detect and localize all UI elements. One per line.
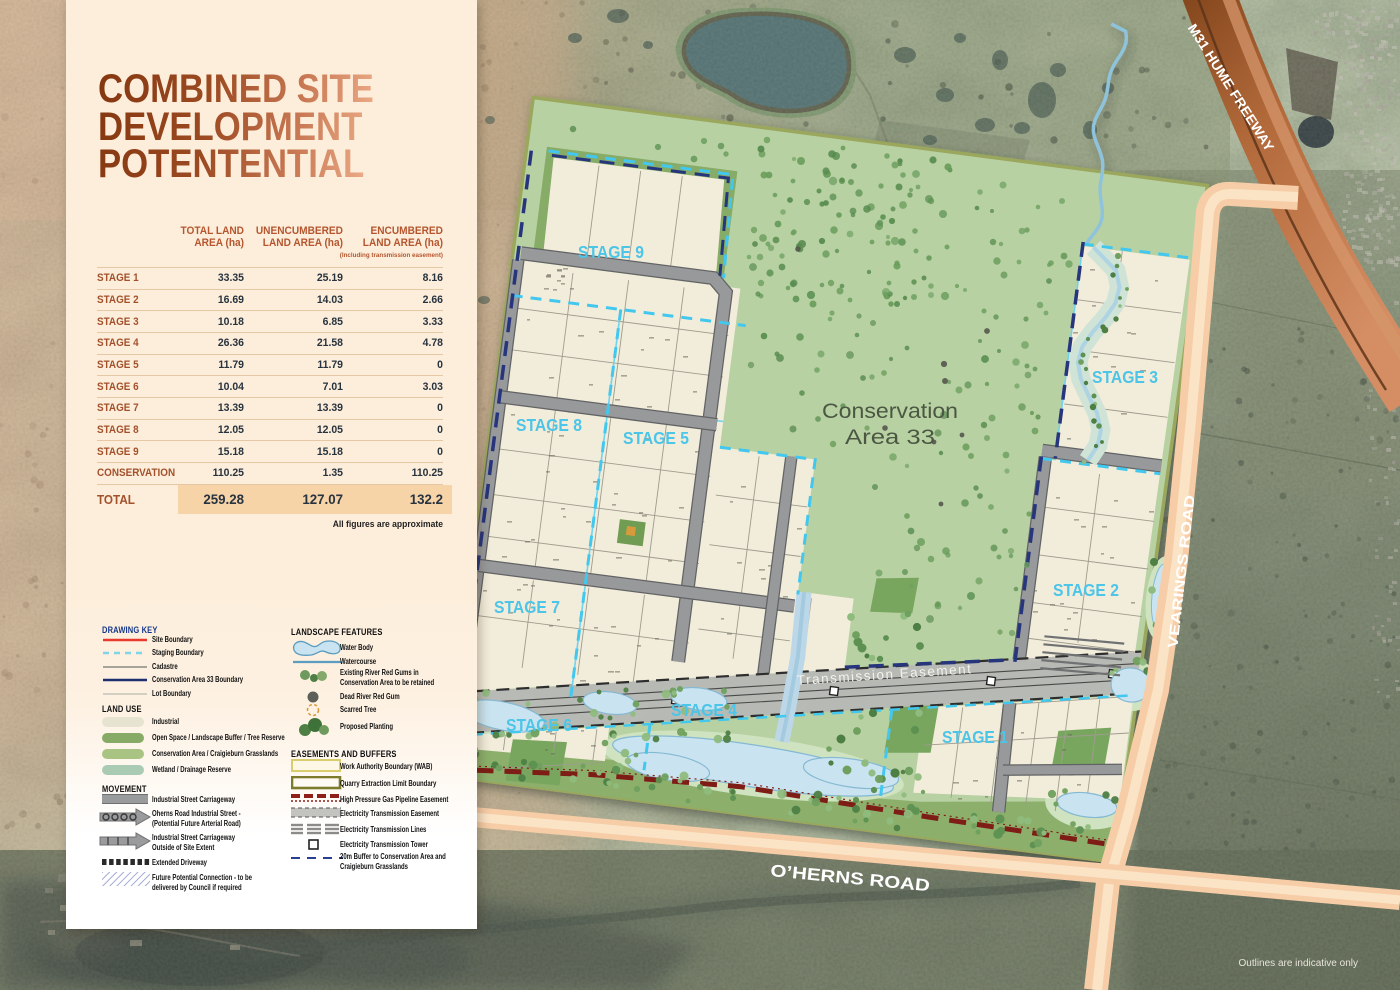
- svg-text:STAGE 6: STAGE 6: [506, 715, 572, 735]
- svg-text:Conservation: Conservation: [822, 399, 958, 423]
- svg-text:STAGE 3: STAGE 3: [1092, 367, 1158, 387]
- svg-text:STAGE 5: STAGE 5: [623, 428, 689, 448]
- svg-text:STAGE 8: STAGE 8: [516, 415, 582, 435]
- svg-text:Outlines are indicative only: Outlines are indicative only: [1238, 958, 1358, 969]
- svg-text:STAGE 4: STAGE 4: [671, 700, 737, 720]
- svg-text:STAGE 2: STAGE 2: [1053, 580, 1119, 600]
- svg-text:STAGE 7: STAGE 7: [494, 597, 560, 617]
- svg-text:Area 33: Area 33: [845, 425, 935, 449]
- svg-text:STAGE 1: STAGE 1: [942, 727, 1008, 747]
- svg-text:STAGE 9: STAGE 9: [578, 242, 644, 262]
